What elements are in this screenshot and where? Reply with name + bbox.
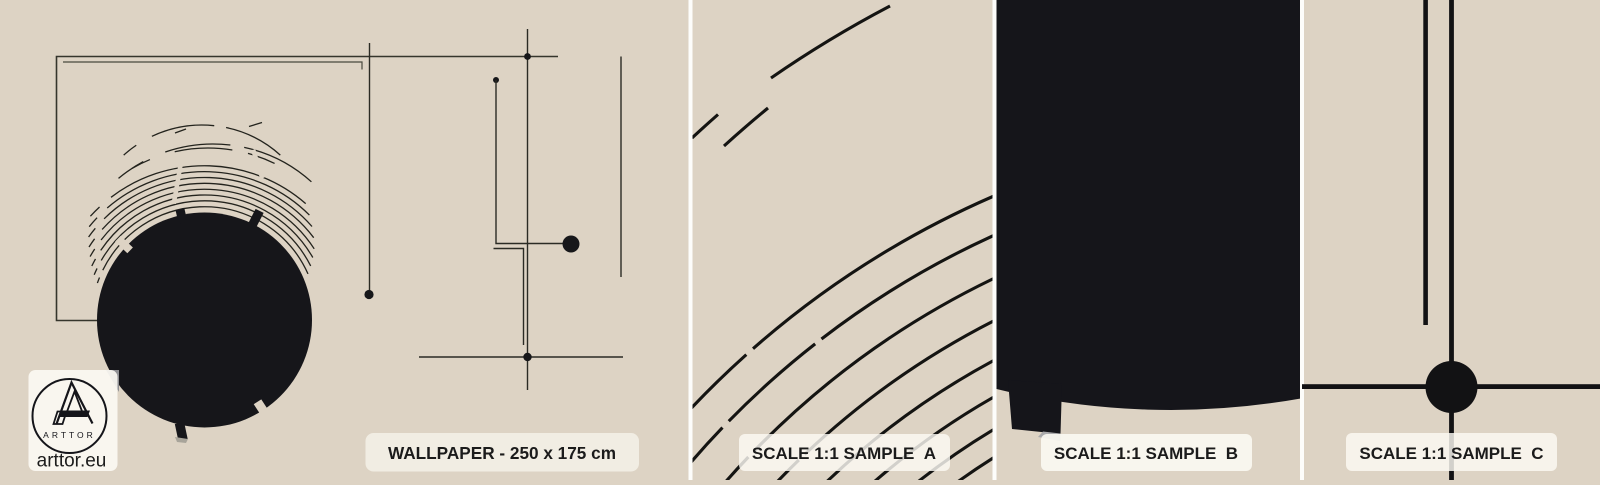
svg-text:SCALE 1:1 SAMPLE B: SCALE 1:1 SAMPLE B [1054, 444, 1238, 463]
svg-text:SCALE 1:1 SAMPLE A: SCALE 1:1 SAMPLE A [752, 444, 936, 463]
svg-text:arttor.eu: arttor.eu [37, 451, 107, 472]
svg-text:WALLPAPER - 250 x 175 cm: WALLPAPER - 250 x 175 cm [388, 443, 616, 463]
svg-text:ARTTOR: ARTTOR [43, 430, 96, 440]
svg-text:SCALE 1:1 SAMPLE C: SCALE 1:1 SAMPLE C [1359, 444, 1543, 463]
